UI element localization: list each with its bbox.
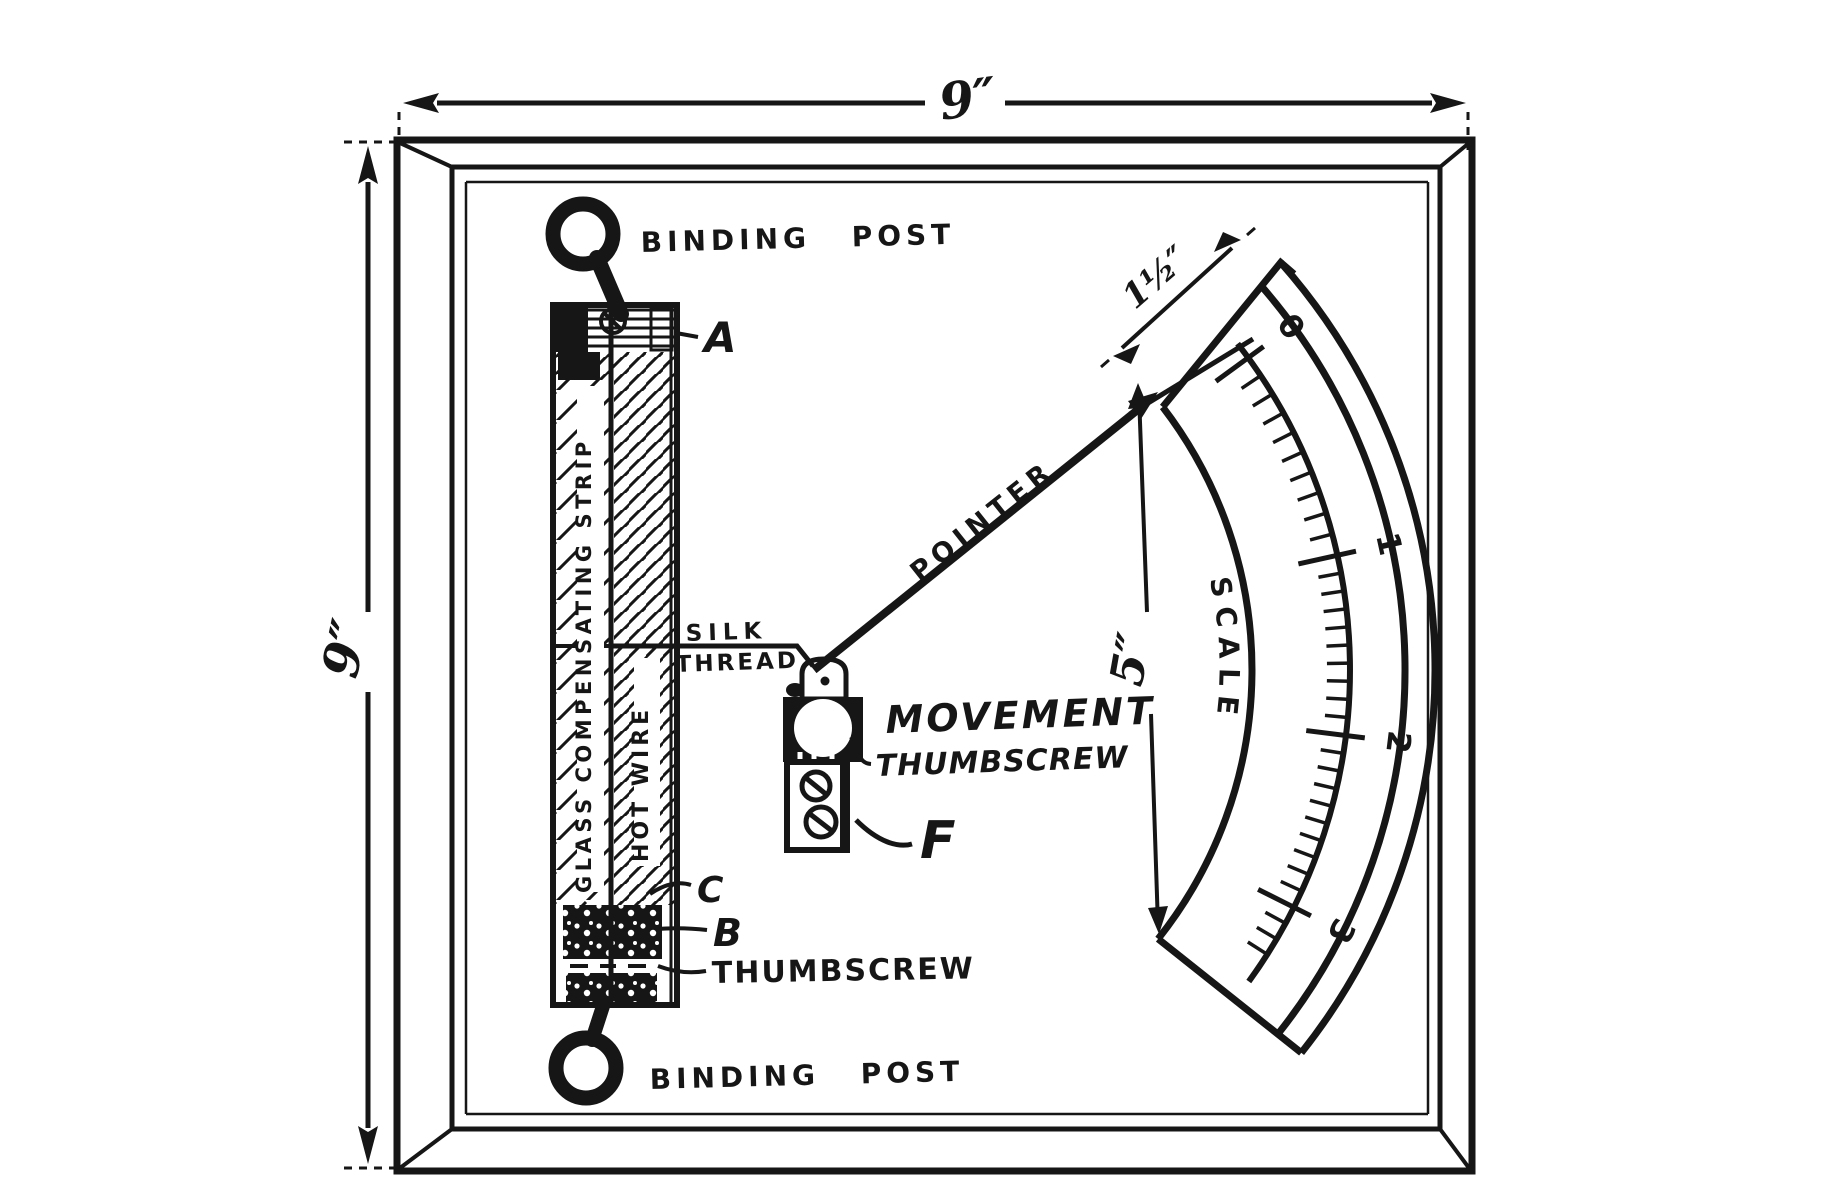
dimension-edge-label: 1½″ xyxy=(1115,238,1197,317)
scale-tick xyxy=(1310,800,1332,806)
scale-tick xyxy=(1321,750,1344,754)
scale-tick xyxy=(1273,432,1294,442)
scale-tick xyxy=(1310,534,1332,540)
scale-tick xyxy=(1318,573,1341,577)
dimension-width-label: 9″ xyxy=(935,65,1000,131)
diagram-canvas: 9″ 9″ BINDING POST xyxy=(0,0,1842,1194)
hot-wire-label: HOT WIRE xyxy=(629,706,654,862)
clamp-a xyxy=(556,307,674,380)
leader-thumbscrew-bottom xyxy=(658,966,706,972)
dimension-scale-edge: 1½″ xyxy=(1101,228,1255,367)
dimension-height-label: 9″ xyxy=(310,614,380,683)
scale-tick xyxy=(1321,591,1344,594)
scale-zero-line xyxy=(1130,339,1253,414)
scale-tick xyxy=(1324,609,1347,612)
arrowhead-left-icon xyxy=(1113,344,1140,364)
arrowhead-right-icon xyxy=(1430,93,1466,113)
leader-b xyxy=(656,928,707,930)
scale-tick xyxy=(1298,492,1320,500)
binding-post-ring xyxy=(553,204,613,264)
pulley-pivot-icon xyxy=(821,677,830,686)
scale-label: SCALE xyxy=(1203,574,1246,725)
clamp-a-hatch-dark xyxy=(558,352,600,380)
binding-post-bottom-label: BINDING POST xyxy=(649,1055,964,1096)
scale-tick xyxy=(1306,731,1365,738)
movement-thumbscrew-label: THUMBSCREW xyxy=(875,740,1130,784)
movement-base-shadow xyxy=(840,762,849,850)
binding-post-bottom: BINDING POST xyxy=(556,1003,965,1098)
binding-post-ring xyxy=(556,1038,616,1098)
scale-tick xyxy=(1305,817,1327,824)
scale-value: 1 xyxy=(1368,529,1410,559)
scale-tick xyxy=(1282,452,1303,461)
part-b-label: B xyxy=(713,911,742,955)
scale-tick xyxy=(1298,551,1356,564)
part-c-label: C xyxy=(697,870,724,911)
arrowhead-up-icon xyxy=(358,146,378,184)
scale-value: 3 xyxy=(1319,913,1363,950)
scale-tick xyxy=(1318,767,1341,771)
scale-tick xyxy=(1304,513,1326,520)
arrowhead-right-icon xyxy=(1214,232,1241,252)
scale-tick xyxy=(1294,850,1316,858)
scale-tick xyxy=(1281,881,1302,891)
arrowhead-down-icon xyxy=(358,1126,378,1164)
dimension-chord-label: 5″ xyxy=(1099,628,1161,690)
leader-f xyxy=(856,820,912,845)
dimension-scale-chord: 5″ xyxy=(1099,383,1168,934)
scale-tick xyxy=(1263,413,1283,424)
scale-bottom-edge xyxy=(1158,939,1301,1053)
binding-post-top: BINDING POST xyxy=(553,204,956,314)
scale-tick xyxy=(1242,376,1261,389)
scale-tick xyxy=(1288,866,1309,875)
scale-tick xyxy=(1265,912,1285,923)
scale-tick xyxy=(1248,942,1267,954)
scale-tick xyxy=(1216,347,1264,382)
arrowhead-left-icon xyxy=(403,93,439,113)
scale-tick xyxy=(1326,698,1349,699)
scale-tick xyxy=(1314,784,1336,789)
pointer-label: POINTER xyxy=(905,455,1061,588)
part-a-label: A xyxy=(701,313,737,362)
scale-tick xyxy=(1325,627,1348,629)
clamp-a-shadow xyxy=(556,307,588,352)
scale-value: 2 xyxy=(1378,729,1418,756)
hot-wire-strip: GLASS COMPENSATING STRIP HOT WIRE xyxy=(553,305,677,1005)
scale-tick xyxy=(1300,833,1322,840)
screw-slot-icon xyxy=(806,778,827,795)
hot-wire-meter-diagram: 9″ 9″ BINDING POST xyxy=(0,0,1842,1194)
scale-tick xyxy=(1257,927,1277,939)
screw-slot-icon xyxy=(810,814,832,831)
silk-label-2: THREAD xyxy=(675,648,799,678)
movement-assembly: SILK THREAD MOVEMENT THUMBSCREW F xyxy=(611,618,1156,871)
glass-strip-label: GLASS COMPENSATING STRIP xyxy=(572,437,596,893)
movement-label: MOVEMENT xyxy=(885,689,1156,742)
part-f-label: F xyxy=(920,811,956,871)
binding-post-top-label: BINDING POST xyxy=(640,218,955,259)
pointer: POINTER xyxy=(814,392,1158,670)
extension-ticks xyxy=(399,112,1468,152)
scale-tick xyxy=(1290,472,1311,481)
scale-tick xyxy=(1253,394,1273,406)
scale-tick xyxy=(1325,715,1348,717)
silk-label-1: SILK xyxy=(685,618,767,647)
bottom-thumbscrew-label: THUMBSCREW xyxy=(712,951,976,991)
scale-tick xyxy=(1326,645,1349,646)
scale-plate: 0123 SCALE xyxy=(1130,263,1435,1053)
dimension-height: 9″ xyxy=(310,142,394,1168)
movement-thumbscrew-knob xyxy=(794,699,852,757)
